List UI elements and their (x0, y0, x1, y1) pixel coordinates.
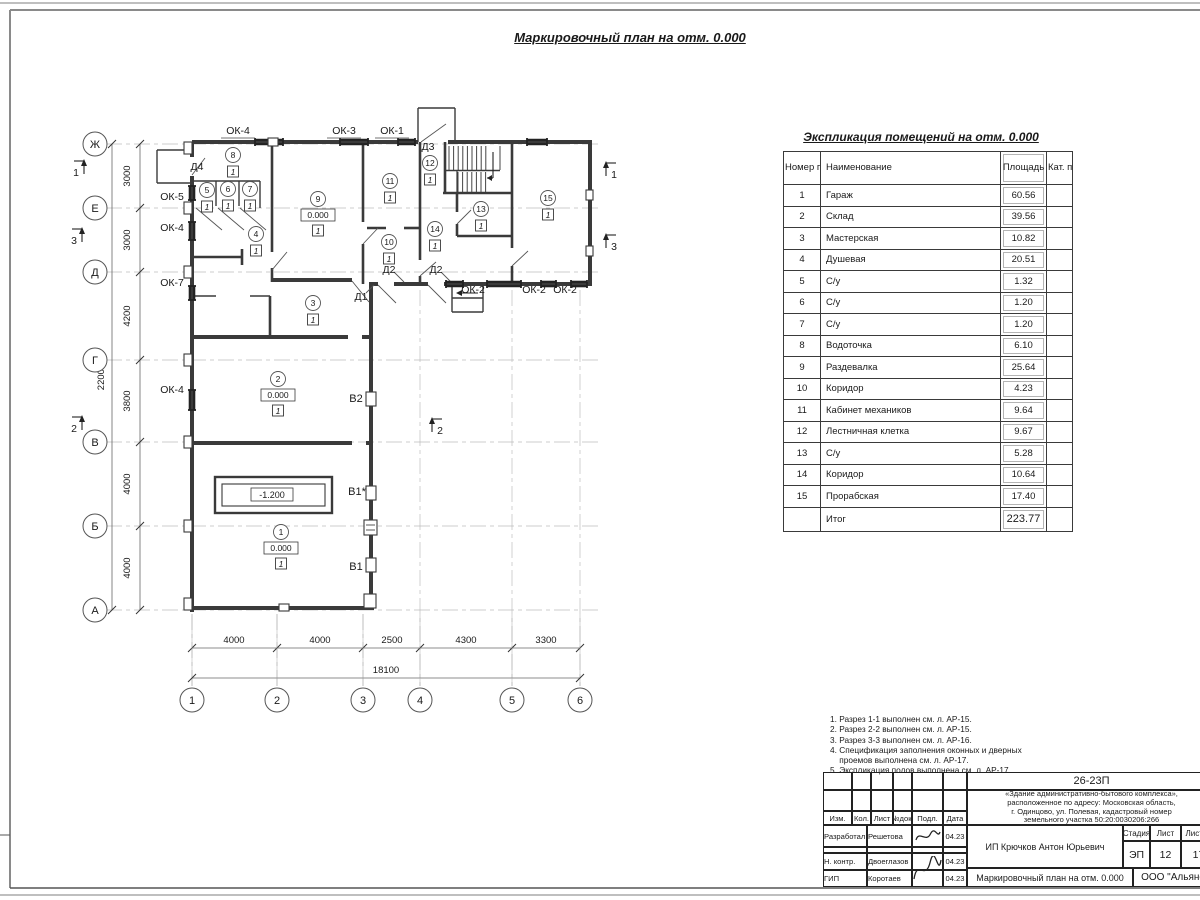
revision-header-cell: Подл. (912, 811, 943, 825)
room-area-cell: 9.64 (1001, 400, 1047, 422)
dimension-text: 3000 (122, 229, 133, 250)
table-row: 4 Душевая 20.51 (784, 249, 1073, 271)
room-category-cell (1047, 185, 1073, 207)
room-area-cell: 10.64 (1001, 464, 1047, 486)
room-name-cell: Раздевалка (821, 357, 1001, 379)
room-name-cell: Водоточка (821, 335, 1001, 357)
pilaster (184, 354, 192, 366)
client-cell: ИП Крючков Антон Юрьевич (967, 825, 1123, 868)
room-area-cell: 60.56 (1001, 185, 1047, 207)
axis-bubble-label: А (91, 605, 99, 617)
floor-type-number: 1 (316, 226, 321, 236)
room-category-cell (1047, 443, 1073, 465)
revision-empty-cell (943, 790, 967, 811)
room-category-cell (1047, 271, 1073, 293)
room-number-cell: 7 (784, 314, 821, 336)
pilaster (366, 486, 376, 500)
dimension-text: 3300 (535, 635, 556, 646)
section-mark-number: 1 (73, 167, 79, 179)
window-label: ОК-4 (160, 384, 184, 396)
title-block: Изм.Кол.Лист№док.Подл.ДатаРазработалРеше… (823, 772, 1200, 887)
col-header-area: Площадь (1001, 152, 1047, 185)
dimension-text: 4000 (223, 635, 244, 646)
room-name-cell: Гараж (821, 185, 1001, 207)
room-category-cell (1047, 249, 1073, 271)
sheets-header-cell: Листов (1181, 825, 1200, 841)
date-cell: 04.23 (943, 870, 967, 887)
room-number: 1 (279, 527, 284, 537)
door-leaf (394, 272, 404, 282)
axis-bubble-label: 5 (509, 695, 515, 707)
col-header-category: Кат. пом. (1047, 152, 1073, 185)
room-number: 11 (386, 176, 395, 186)
table-row: 10 Коридор 4.23 (784, 378, 1073, 400)
room-category-cell (1047, 292, 1073, 314)
floor-type-number: 1 (205, 202, 210, 212)
room-number: 3 (311, 298, 316, 308)
section-mark-number: 2 (71, 423, 77, 435)
section-mark-arrow (429, 417, 435, 424)
section-mark-number: 3 (611, 241, 617, 253)
table-row: 3 Мастерская 10.82 (784, 228, 1073, 250)
person-role-cell: Разработал (823, 825, 867, 847)
revision-header-cell: №док. (893, 811, 912, 825)
door-leaf (272, 252, 287, 270)
revision-empty-cell (823, 772, 852, 790)
revision-header-cell: Лист (871, 811, 893, 825)
floor-type-number: 1 (433, 241, 438, 251)
room-number-cell: 14 (784, 464, 821, 486)
door-leaf (512, 251, 528, 266)
room-category-cell (1047, 228, 1073, 250)
pilaster (184, 142, 192, 154)
room-area-cell: 9.67 (1001, 421, 1047, 443)
door-leaf (457, 210, 471, 224)
person-role-cell: Н. контр. (823, 853, 867, 870)
room-number-cell: 3 (784, 228, 821, 250)
revision-empty-cell (893, 772, 912, 790)
door-leaf (378, 285, 396, 303)
door-leaf (421, 124, 446, 142)
room-number: 14 (430, 224, 440, 234)
organization-cell: ООО "Альянс" (1133, 868, 1200, 887)
window-label: ОК-5 (160, 191, 184, 203)
window-label: ОК-2 (461, 284, 485, 296)
pilaster (364, 594, 376, 608)
room-category-cell (1047, 421, 1073, 443)
date-cell: 04.23 (943, 825, 967, 847)
room-number-cell: 11 (784, 400, 821, 422)
door-label: Д2 (383, 264, 396, 276)
section-mark-arrow (603, 233, 609, 240)
pit-level-text: -1.200 (259, 490, 285, 500)
revision-empty-cell (852, 772, 871, 790)
dimension-text: 3000 (122, 165, 133, 186)
room-name-cell: Мастерская (821, 228, 1001, 250)
floor-type-number: 1 (254, 246, 259, 256)
duct-symbol (364, 520, 377, 535)
room-number: 13 (476, 204, 486, 214)
floor-type-number: 1 (388, 193, 393, 203)
dimension-text: 4000 (309, 635, 330, 646)
room-area-cell: 1.32 (1001, 271, 1047, 293)
stair-arrow-head (487, 175, 492, 181)
section-mark-arrow (603, 161, 609, 168)
project-description-line: земельного участка 50:20:0030206:266 (1024, 816, 1159, 825)
table-row: 8 Водоточка 6.10 (784, 335, 1073, 357)
room-number-cell: 9 (784, 357, 821, 379)
sheet-title-cell: Маркировочный план на отм. 0.000 (967, 868, 1133, 887)
signature-cell (912, 870, 943, 887)
room-category-cell (1047, 314, 1073, 336)
room-name-cell: Душевая (821, 249, 1001, 271)
room-number-cell: 12 (784, 421, 821, 443)
revision-empty-cell (893, 790, 912, 811)
section-mark-number: 2 (437, 425, 443, 437)
date-cell: 04.23 (943, 853, 967, 870)
pilaster (184, 598, 192, 610)
floor-type-number: 1 (279, 559, 284, 569)
dimension-text: 4300 (455, 635, 476, 646)
riser-label: В1* (348, 486, 366, 498)
person-name-cell: Двоеглазов (867, 853, 912, 870)
table-row: 13 С/у 5.28 (784, 443, 1073, 465)
pilaster (184, 520, 192, 532)
room-area-cell: 17.40 (1001, 486, 1047, 508)
dimension-text: 4200 (122, 305, 133, 326)
window-label: ОК-7 (160, 277, 184, 289)
door-leaf (363, 228, 378, 244)
room-area-cell: 39.56 (1001, 206, 1047, 228)
total-area-cell: 223.77 (1001, 507, 1047, 531)
revision-empty-cell (912, 772, 943, 790)
table-row: 14 Коридор 10.64 (784, 464, 1073, 486)
revision-header-cell: Кол. (852, 811, 871, 825)
room-explication: Экспликация помещений на отм. 0.000 Номе… (783, 130, 1059, 532)
axis-bubble-label: 1 (189, 695, 195, 707)
door-leaf (428, 285, 446, 303)
pilaster (184, 202, 192, 214)
section-mark-arrow (81, 159, 87, 166)
table-row: 15 Прорабская 17.40 (784, 486, 1073, 508)
room-name-cell: Лестничная клетка (821, 421, 1001, 443)
riser-label: В1 (349, 561, 362, 573)
room-name-cell: С/у (821, 314, 1001, 336)
room-number: 9 (316, 194, 321, 204)
table-row: 9 Раздевалка 25.64 (784, 357, 1073, 379)
room-number-cell: 15 (784, 486, 821, 508)
room-category-cell (1047, 206, 1073, 228)
revision-empty-cell (912, 790, 943, 811)
room-number: 2 (276, 374, 281, 384)
person-role-cell: ГИП (823, 870, 867, 887)
floor-type-number: 1 (248, 201, 253, 211)
revision-empty-cell (871, 790, 893, 811)
dimension-text: 4000 (122, 473, 133, 494)
axis-bubble-label: Г (92, 355, 98, 367)
window-label: ОК-1 (380, 125, 404, 137)
window-label: ОК-3 (332, 125, 356, 137)
signature-cell (912, 825, 943, 847)
room-area-cell: 5.28 (1001, 443, 1047, 465)
room-category-cell (1047, 378, 1073, 400)
section-mark-number: 1 (611, 169, 617, 181)
room-category-cell (1047, 486, 1073, 508)
room-level: 0.000 (270, 543, 292, 553)
room-name-cell: Прорабская (821, 486, 1001, 508)
person-name-cell: Решетова (867, 825, 912, 847)
room-area-cell: 4.23 (1001, 378, 1047, 400)
axis-bubble-label: Е (91, 203, 98, 215)
floor-type-number: 1 (276, 406, 281, 416)
room-number: 7 (248, 184, 253, 194)
axis-bubble-label: 3 (360, 695, 366, 707)
room-area-cell: 25.64 (1001, 357, 1047, 379)
room-number: 5 (205, 185, 210, 195)
revision-empty-cell (852, 790, 871, 811)
pilaster (586, 190, 593, 200)
door-label: Д1 (355, 291, 368, 303)
axis-bubble-label: 4 (417, 695, 423, 707)
room-category-cell (1047, 464, 1073, 486)
dimension-text: 2500 (381, 635, 402, 646)
room-number-cell: 4 (784, 249, 821, 271)
room-name-cell: Кабинет механиков (821, 400, 1001, 422)
riser-label: В2 (349, 393, 362, 405)
floor-type-number: 1 (546, 210, 551, 220)
window-label: ОК-4 (226, 125, 250, 137)
room-area-cell: 1.20 (1001, 314, 1047, 336)
room-level: 0.000 (307, 210, 329, 220)
total-label-cell: Итог (821, 507, 1001, 531)
table-total-row: Итог 223.77 (784, 507, 1073, 531)
room-name-cell: С/у (821, 292, 1001, 314)
room-number-cell: 5 (784, 271, 821, 293)
pilaster (279, 604, 289, 611)
axis-bubble-label: 6 (577, 695, 583, 707)
door-label: Д4 (191, 161, 204, 173)
table-row: 7 С/у 1.20 (784, 314, 1073, 336)
room-name-cell: С/у (821, 271, 1001, 293)
room-number: 8 (231, 150, 236, 160)
pilaster (268, 138, 278, 146)
axis-bubble-label: В (91, 437, 98, 449)
notes-list: 1. Разрез 1-1 выполнен см. л. АР-15. 2. … (830, 714, 1022, 776)
room-number: 4 (254, 229, 259, 239)
door-label: Д3 (422, 141, 435, 153)
col-header-name: Наименование (821, 152, 1001, 185)
stage-header-cell: Стадия (1123, 825, 1150, 841)
room-number-cell: 1 (784, 185, 821, 207)
room-name-cell: Коридор (821, 378, 1001, 400)
pilaster (184, 436, 192, 448)
floor-type-number: 1 (311, 315, 316, 325)
room-category-cell (1047, 400, 1073, 422)
room-number: 10 (384, 237, 394, 247)
table-row: 11 Кабинет механиков 9.64 (784, 400, 1073, 422)
floor-type-number: 1 (231, 167, 236, 177)
dimension-text: 4000 (122, 557, 133, 578)
window-label: ОК-4 (160, 222, 184, 234)
table-row: 12 Лестничная клетка 9.67 (784, 421, 1073, 443)
pilaster (366, 558, 376, 572)
sheet-header-cell: Лист (1150, 825, 1181, 841)
room-number-cell: 13 (784, 443, 821, 465)
section-mark-arrow (79, 415, 85, 422)
section-mark-arrow (79, 227, 85, 234)
room-area-cell: 10.82 (1001, 228, 1047, 250)
table-row: 6 С/у 1.20 (784, 292, 1073, 314)
floor-plan: 3000300042003800400040002200040004000250… (0, 0, 720, 760)
window-label: ОК-2 (522, 284, 546, 296)
table-row: 5 С/у 1.32 (784, 271, 1073, 293)
sheet-number-cell: 12 (1150, 841, 1181, 868)
explication-table: Номер помещ. Наименование Площадь Кат. п… (783, 151, 1073, 532)
room-name-cell: Склад (821, 206, 1001, 228)
axis-bubble-label: Б (91, 521, 98, 533)
room-area-cell: 1.20 (1001, 292, 1047, 314)
room-category-cell (1047, 357, 1073, 379)
stage-value-cell: ЭП (1123, 841, 1150, 868)
floor-type-number: 1 (428, 175, 433, 185)
room-level: 0.000 (267, 390, 289, 400)
signature-cell (912, 853, 943, 870)
floor-type-number: 1 (479, 221, 484, 231)
floor-type-number: 1 (387, 254, 392, 264)
person-name-cell: Коротаев (867, 870, 912, 887)
axis-bubble-label: Ж (90, 139, 100, 151)
dimension-text: 3800 (122, 390, 133, 411)
table-title: Экспликация помещений на отм. 0.000 (783, 130, 1059, 144)
room-number-cell: 6 (784, 292, 821, 314)
room-number-cell: 10 (784, 378, 821, 400)
pilaster (184, 266, 192, 278)
room-name-cell: Коридор (821, 464, 1001, 486)
door-label: Д2 (430, 264, 443, 276)
revision-header-cell: Изм. (823, 811, 852, 825)
room-number: 6 (226, 184, 231, 194)
document-code-cell: 26-23П (967, 772, 1200, 790)
floor-type-number: 1 (226, 201, 231, 211)
room-name-cell: С/у (821, 443, 1001, 465)
total-category-cell (1047, 507, 1073, 531)
room-number-cell: 8 (784, 335, 821, 357)
room-area-cell: 20.51 (1001, 249, 1047, 271)
room-area-cell: 6.10 (1001, 335, 1047, 357)
revision-empty-cell (823, 790, 852, 811)
table-row: 1 Гараж 60.56 (784, 185, 1073, 207)
pilaster (586, 246, 593, 256)
axis-bubble-label: Д (91, 267, 99, 279)
project-description-cell: «Здание административно-бытового комплек… (967, 790, 1200, 825)
revision-empty-cell (871, 772, 893, 790)
section-mark-number: 3 (71, 235, 77, 247)
revision-header-cell: Дата (943, 811, 967, 825)
pilaster (366, 392, 376, 406)
room-category-cell (1047, 335, 1073, 357)
sheets-total-cell: 17 (1181, 841, 1200, 868)
col-header-number: Номер помещ. (784, 152, 821, 185)
total-empty-cell (784, 507, 821, 531)
room-number: 15 (543, 193, 553, 203)
revision-empty-cell (943, 772, 967, 790)
room-number-cell: 2 (784, 206, 821, 228)
room-number: 12 (425, 158, 435, 168)
dimension-total-text: 18100 (373, 665, 399, 676)
window-label: ОК-2 (553, 284, 577, 296)
table-row: 2 Склад 39.56 (784, 206, 1073, 228)
axis-bubble-label: 2 (274, 695, 280, 707)
